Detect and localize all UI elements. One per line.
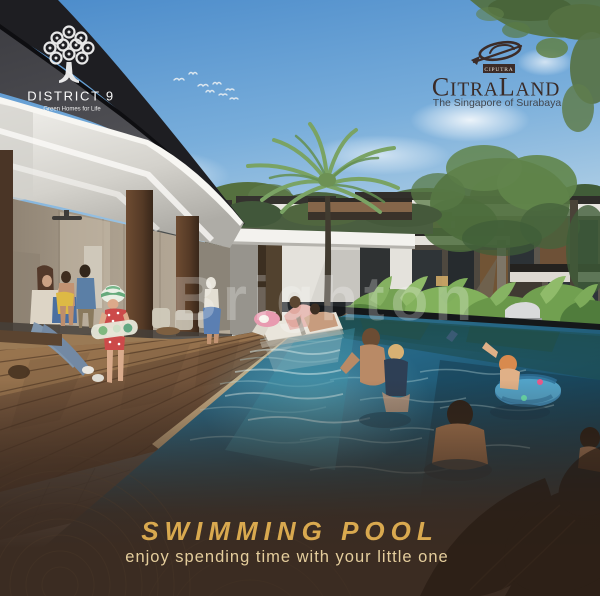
- svg-text:Brighton: Brighton: [172, 265, 478, 334]
- svg-text:DISTRICT 9: DISTRICT 9: [27, 89, 115, 104]
- svg-text:Green Homes for Life: Green Homes for Life: [43, 107, 101, 113]
- svg-text:SWIMMING POOL: SWIMMING POOL: [141, 516, 439, 546]
- svg-text:The Singapore of Surabaya: The Singapore of Surabaya: [433, 97, 562, 109]
- svg-text:enjoy spending time with your: enjoy spending time with your little one: [125, 548, 448, 566]
